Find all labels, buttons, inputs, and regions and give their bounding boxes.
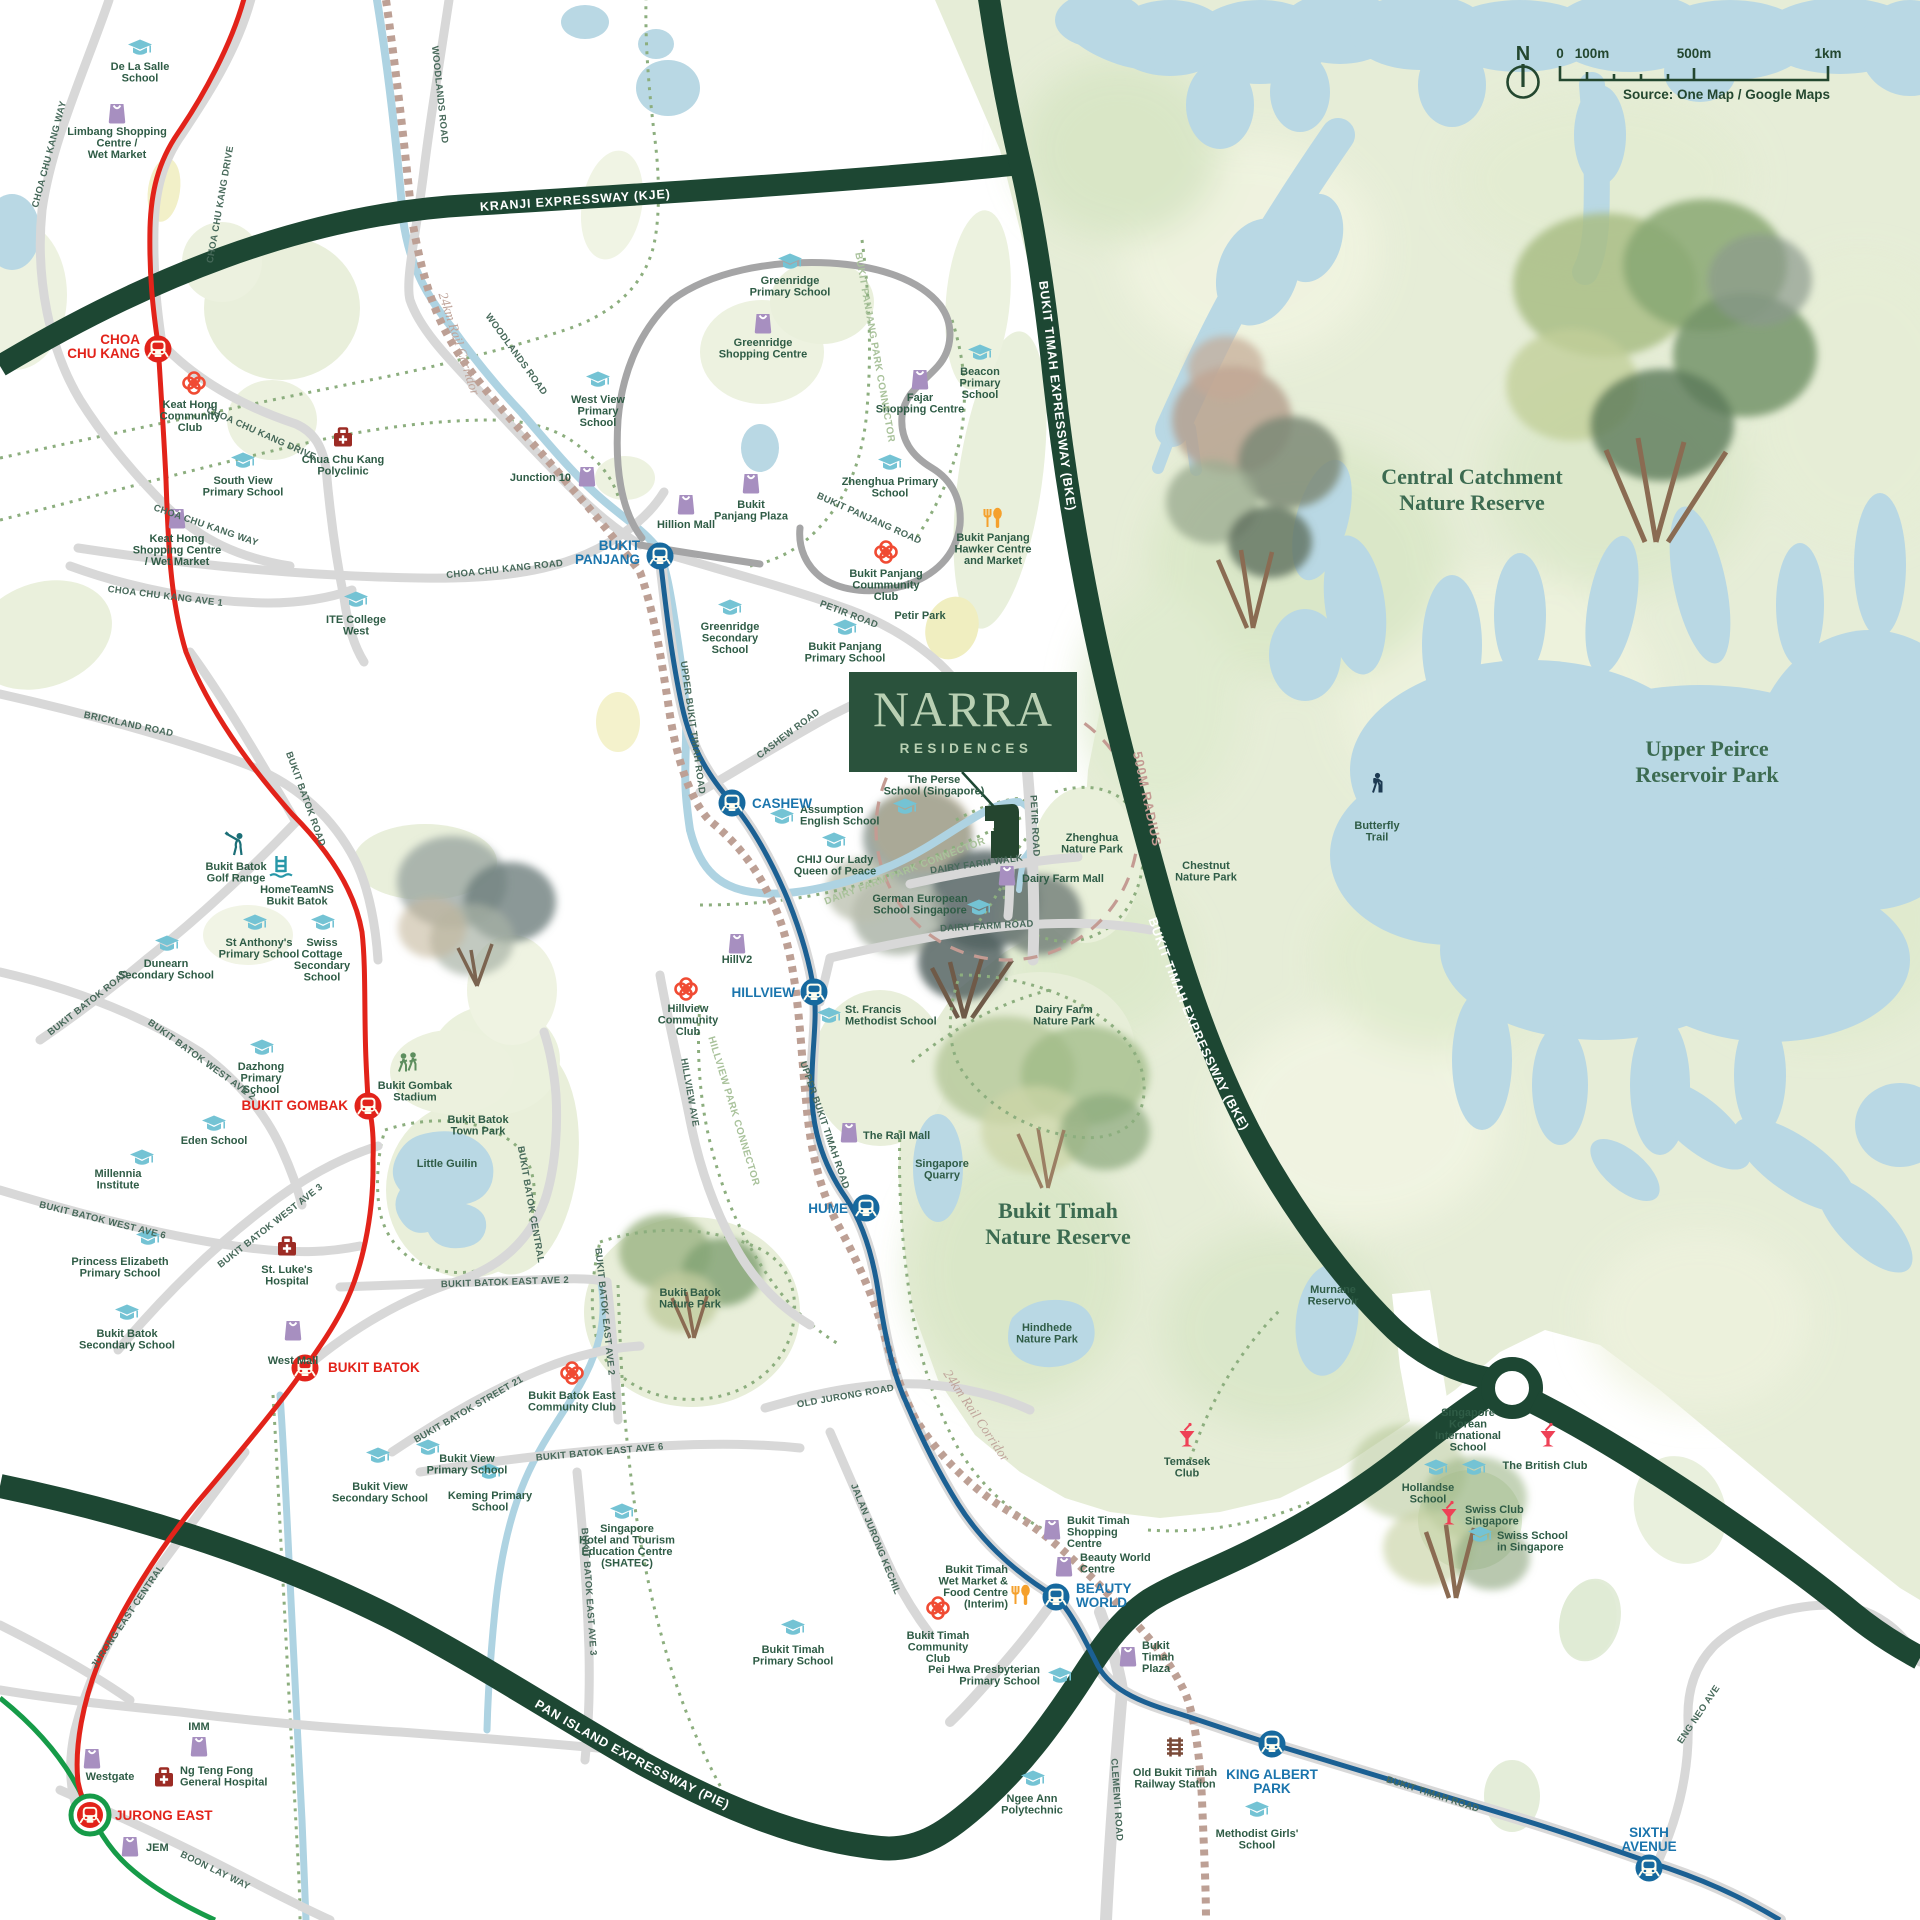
svg-text:German EuropeanSchool Singapor: German EuropeanSchool Singapore — [872, 893, 968, 917]
svg-text:Bukit TimahNature Reserve: Bukit TimahNature Reserve — [985, 1198, 1131, 1249]
svg-text:West Mall: West Mall — [268, 1355, 319, 1367]
svg-text:Hillion Mall: Hillion Mall — [657, 519, 715, 531]
svg-text:South ViewPrimary School: South ViewPrimary School — [203, 475, 284, 499]
svg-text:The Rail Mall: The Rail Mall — [863, 1130, 930, 1142]
svg-text:Old Bukit TimahRailway Station: Old Bukit TimahRailway Station — [1133, 1767, 1217, 1791]
svg-text:Swiss Schoolin Singapore: Swiss Schoolin Singapore — [1497, 1530, 1568, 1554]
svg-text:CASHEW: CASHEW — [752, 796, 812, 811]
svg-text:RESIDENCES: RESIDENCES — [900, 741, 1033, 756]
svg-text:HUME: HUME — [808, 1201, 848, 1216]
svg-text:Central CatchmentNature Reserv: Central CatchmentNature Reserve — [1381, 464, 1563, 515]
svg-text:HillV2: HillV2 — [722, 954, 753, 966]
svg-text:IMM: IMM — [188, 1721, 209, 1733]
svg-text:GreenridgePrimary School: GreenridgePrimary School — [750, 275, 831, 299]
svg-text:JURONG EAST: JURONG EAST — [115, 1808, 213, 1823]
svg-text:ChestnutNature Park: ChestnutNature Park — [1175, 860, 1238, 884]
svg-text:1km: 1km — [1814, 46, 1841, 61]
svg-text:Junction 10: Junction 10 — [510, 472, 571, 484]
svg-text:Dairy Farm Mall: Dairy Farm Mall — [1022, 873, 1104, 885]
svg-text:Bukit PanjangHawker Centreand: Bukit PanjangHawker Centreand Market — [954, 532, 1031, 567]
svg-text:St. Luke'sHospital: St. Luke'sHospital — [261, 1264, 313, 1288]
svg-text:500m: 500m — [1677, 46, 1712, 61]
svg-text:ZhenghuaNature Park: ZhenghuaNature Park — [1061, 832, 1124, 856]
svg-text:Upper PeirceReservoir Park: Upper PeirceReservoir Park — [1635, 736, 1779, 787]
svg-text:BeaconPrimarySchool: BeaconPrimarySchool — [960, 366, 1002, 401]
svg-text:The British Club: The British Club — [1503, 1460, 1588, 1472]
svg-text:Westgate: Westgate — [86, 1771, 135, 1783]
svg-text:Bukit BatokNature Park: Bukit BatokNature Park — [659, 1287, 722, 1311]
svg-text:Swiss ClubSingapore: Swiss ClubSingapore — [1465, 1504, 1524, 1528]
svg-text:NARRA: NARRA — [873, 681, 1053, 737]
svg-text:Petir Park: Petir Park — [894, 610, 946, 622]
svg-text:0: 0 — [1556, 46, 1564, 61]
svg-text:Bukit BatokTown Park: Bukit BatokTown Park — [447, 1114, 509, 1138]
svg-text:Source: One Map / Google Maps: Source: One Map / Google Maps — [1623, 87, 1830, 102]
svg-text:BUKIT GOMBAK: BUKIT GOMBAK — [242, 1098, 349, 1113]
svg-text:Eden School: Eden School — [181, 1135, 248, 1147]
svg-text:Bukit TimahPrimary School: Bukit TimahPrimary School — [753, 1644, 834, 1668]
svg-text:Princess ElizabethPrimary Scho: Princess ElizabethPrimary School — [71, 1256, 168, 1280]
svg-text:JEM: JEM — [146, 1842, 169, 1854]
svg-text:Bukit Batok EastCommunity Club: Bukit Batok EastCommunity Club — [528, 1390, 616, 1414]
svg-text:SIXTHAVENUE: SIXTHAVENUE — [1621, 1825, 1676, 1854]
svg-text:HILLVIEW: HILLVIEW — [732, 985, 796, 1000]
svg-text:N: N — [1516, 43, 1530, 65]
svg-text:HindhedeNature Park: HindhedeNature Park — [1016, 1322, 1079, 1346]
svg-text:Bukit BatokGolf Range: Bukit BatokGolf Range — [205, 861, 267, 885]
svg-text:Little Guilin: Little Guilin — [417, 1158, 478, 1170]
svg-text:MurnaneReservoir: MurnaneReservoir — [1308, 1284, 1359, 1308]
svg-text:Ngee AnnPolytechnic: Ngee AnnPolytechnic — [1001, 1793, 1063, 1817]
svg-text:BEAUTYWORLD: BEAUTYWORLD — [1076, 1581, 1132, 1610]
svg-text:CHIJ Our LadyQueen of Peace: CHIJ Our LadyQueen of Peace — [794, 854, 877, 878]
svg-text:Bukit PanjangPrimary School: Bukit PanjangPrimary School — [805, 641, 886, 665]
svg-text:HomeTeamNSBukit Batok: HomeTeamNSBukit Batok — [260, 884, 334, 908]
svg-text:100m: 100m — [1575, 46, 1610, 61]
svg-text:BUKIT BATOK: BUKIT BATOK — [328, 1360, 420, 1375]
svg-text:Dairy FarmNature Park: Dairy FarmNature Park — [1033, 1004, 1096, 1028]
svg-text:St Anthony'sPrimary School: St Anthony'sPrimary School — [219, 937, 300, 961]
svg-text:MillenniaInstitute: MillenniaInstitute — [94, 1168, 142, 1192]
